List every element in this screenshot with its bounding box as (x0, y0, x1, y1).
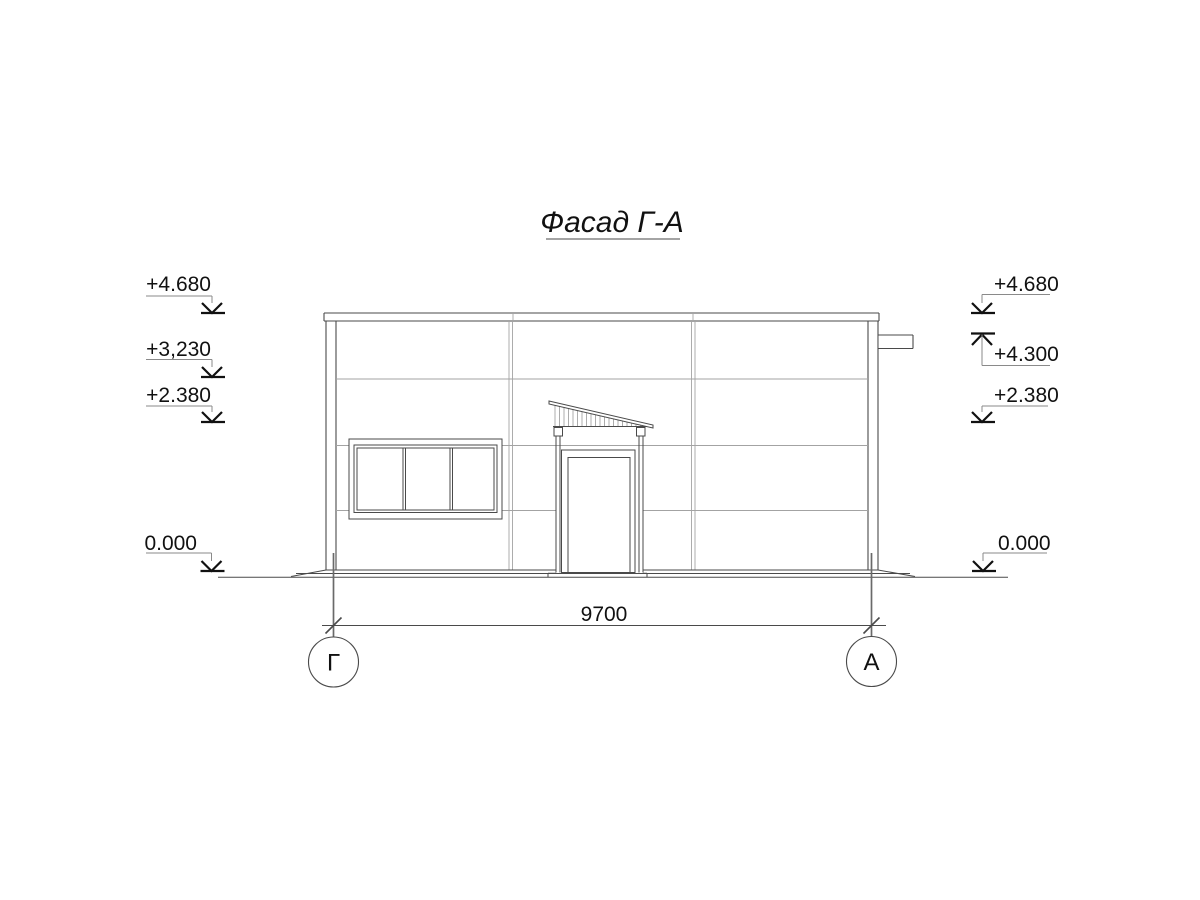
elevation-label: +4.680 (994, 273, 1059, 296)
window (349, 439, 502, 519)
elevation-label: 0.000 (144, 532, 197, 555)
elevation-label: +2.380 (994, 384, 1059, 407)
elevation-label: +3,230 (146, 338, 211, 361)
axis-bubble-g: Г (309, 637, 359, 687)
elevation-label: +4.300 (994, 343, 1059, 366)
post-cap-left (554, 428, 563, 437)
drawing-sheet: Фасад Г-А (0, 0, 1200, 900)
axis-letter: Г (327, 650, 340, 677)
scupper-pipe (879, 335, 914, 349)
dimension-label: 9700 (581, 603, 628, 626)
post-cap-right (637, 428, 646, 437)
facade-drawing: Фасад Г-А (0, 0, 1200, 900)
drawing-title: Фасад Г-А (540, 206, 683, 239)
axis-letter: А (863, 649, 879, 676)
entrance-door (556, 450, 643, 573)
elevation-label: 0.000 (998, 532, 1051, 555)
axis-bubble-a: А (847, 637, 897, 687)
elevation-label: +2.380 (146, 384, 211, 407)
drawing-title-text: Фасад Г-А (540, 206, 683, 239)
elevation-label: +4.680 (146, 273, 211, 296)
